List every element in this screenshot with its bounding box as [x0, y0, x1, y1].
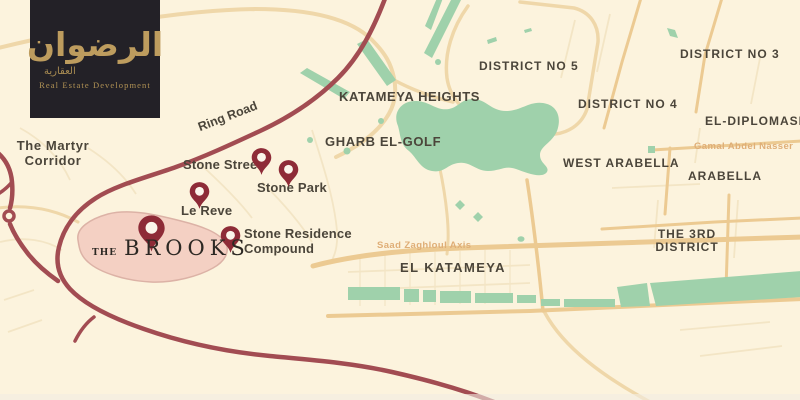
location-map: الرضوان العقارية Real Estate Development… [0, 0, 800, 400]
brooks-project-title: THE BROOKS [92, 236, 250, 260]
stone-street-pin-icon [250, 147, 273, 176]
label-katameya-heights: KATAMEYA HEIGHTS [339, 89, 480, 104]
brooks-title-prefix: THE [92, 248, 117, 258]
label-gharb-el-golf: GHARB EL-GOLF [325, 134, 441, 149]
brand-arabic-tagline: العقارية [30, 66, 76, 77]
label-west-arabella: WEST ARABELLA [563, 156, 680, 170]
brooks-title-name: BROOKS [124, 236, 250, 260]
label-saad-zaghloul-axis: Saad Zaghloul Axis [377, 240, 471, 251]
martyr-corridor-path [0, 153, 12, 208]
brand-tagline: Real Estate Development [39, 80, 151, 90]
roundabout [4, 211, 14, 221]
map-bottom-edge [0, 394, 800, 400]
label-district-no-4: DISTRICT NO 4 [578, 97, 678, 111]
brand-arabic-name: الرضوان [27, 28, 163, 63]
le-reve-pin-icon [188, 181, 211, 210]
label-el-diplomase: EL-DIPLOMASE [705, 114, 800, 128]
label-district-no-5: DISTRICT NO 5 [479, 59, 579, 73]
label-martyr-corridor: The Martyr Corridor [13, 139, 93, 168]
brand-logo: الرضوان العقارية Real Estate Development [30, 0, 160, 118]
label-el-katameya: EL KATAMEYA [400, 260, 506, 275]
label-district-no-3: DISTRICT NO 3 [680, 47, 780, 61]
label-arabella: ARABELLA [688, 169, 762, 183]
label-stone-residence-compound: Stone Residence Compound [244, 227, 356, 256]
label-the-3rd-district: THE 3RD DISTRICT [651, 228, 723, 255]
stone-park-pin-icon [277, 159, 300, 188]
label-gamal-abdel-nasser: Gamal Abdel Nasser [694, 141, 793, 152]
